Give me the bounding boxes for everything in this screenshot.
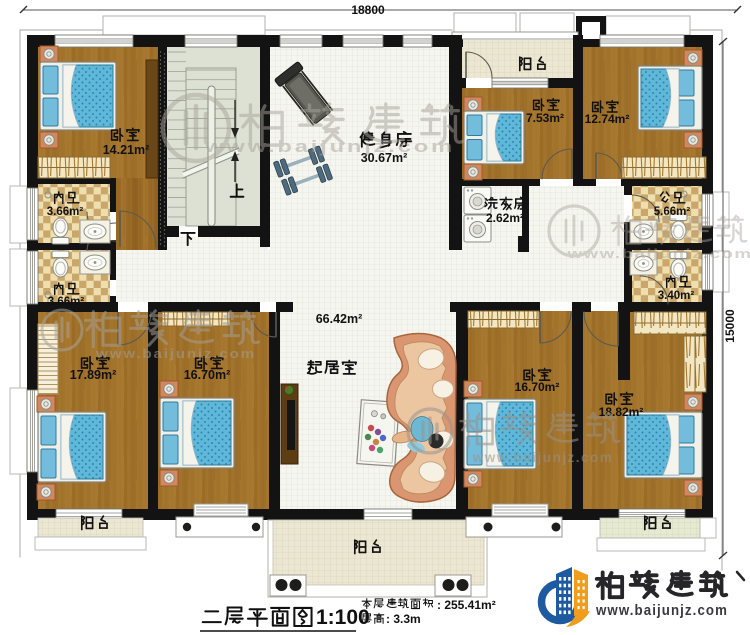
svg-text:3.66m²: 3.66m² (47, 206, 84, 218)
svg-text:15000: 15000 (723, 309, 737, 343)
svg-text:14.21m²: 14.21m² (103, 143, 150, 157)
svg-text:2.62m²: 2.62m² (486, 211, 524, 225)
svg-text:5.66m²: 5.66m² (654, 206, 691, 218)
svg-text:1:100: 1:100 (316, 606, 370, 629)
svg-text:16.70m²: 16.70m² (184, 368, 231, 382)
svg-text:www.baijunjz.com: www.baijunjz.com (204, 137, 455, 156)
svg-text:17.89m²: 17.89m² (70, 368, 117, 382)
svg-text:: 3.3m: : 3.3m (386, 612, 421, 626)
svg-text:7.53m²: 7.53m² (526, 111, 564, 125)
svg-text:www.baijunjz.com: www.baijunjz.com (472, 450, 614, 465)
svg-text:www.baijunjz.com: www.baijunjz.com (566, 246, 750, 261)
svg-text:www.baijunjz.com: www.baijunjz.com (595, 603, 728, 619)
svg-text:12.74m²: 12.74m² (585, 112, 630, 126)
svg-text:16.70m²: 16.70m² (515, 380, 560, 394)
svg-text:www.baijunjz.com: www.baijunjz.com (95, 346, 256, 361)
svg-text:3.40m²: 3.40m² (658, 290, 695, 302)
svg-text:: 255.41m²: : 255.41m² (437, 598, 496, 612)
svg-text:3.66m²: 3.66m² (48, 296, 85, 308)
svg-text:66.42m²: 66.42m² (316, 312, 363, 326)
svg-text:18800: 18800 (351, 3, 385, 17)
